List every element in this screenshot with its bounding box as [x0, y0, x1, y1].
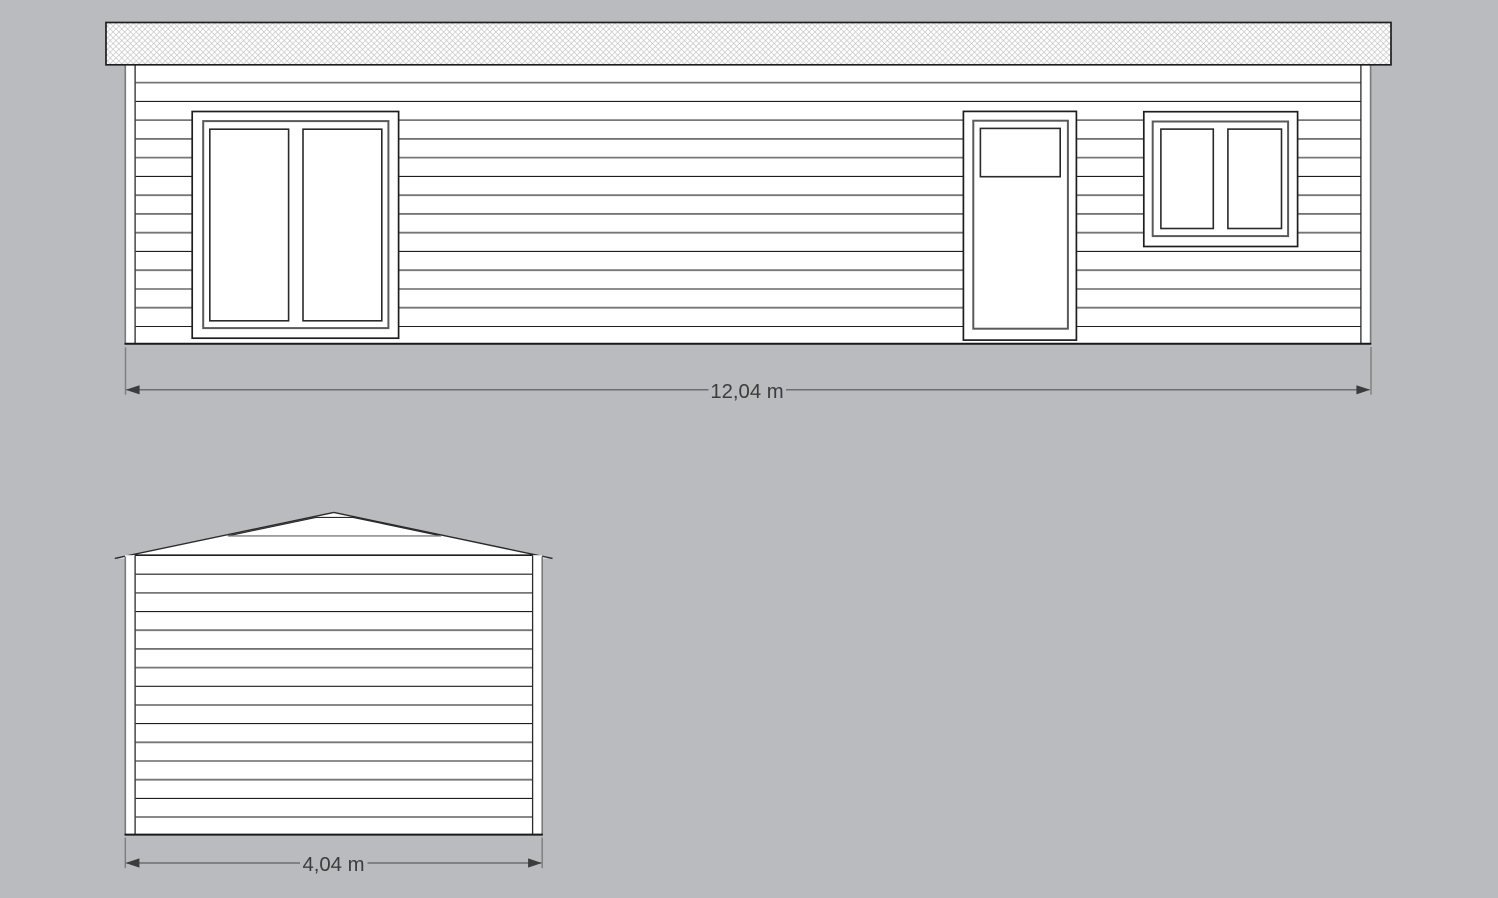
svg-text:12,04 m: 12,04 m	[710, 381, 783, 403]
svg-text:4,04 m: 4,04 m	[302, 854, 364, 876]
